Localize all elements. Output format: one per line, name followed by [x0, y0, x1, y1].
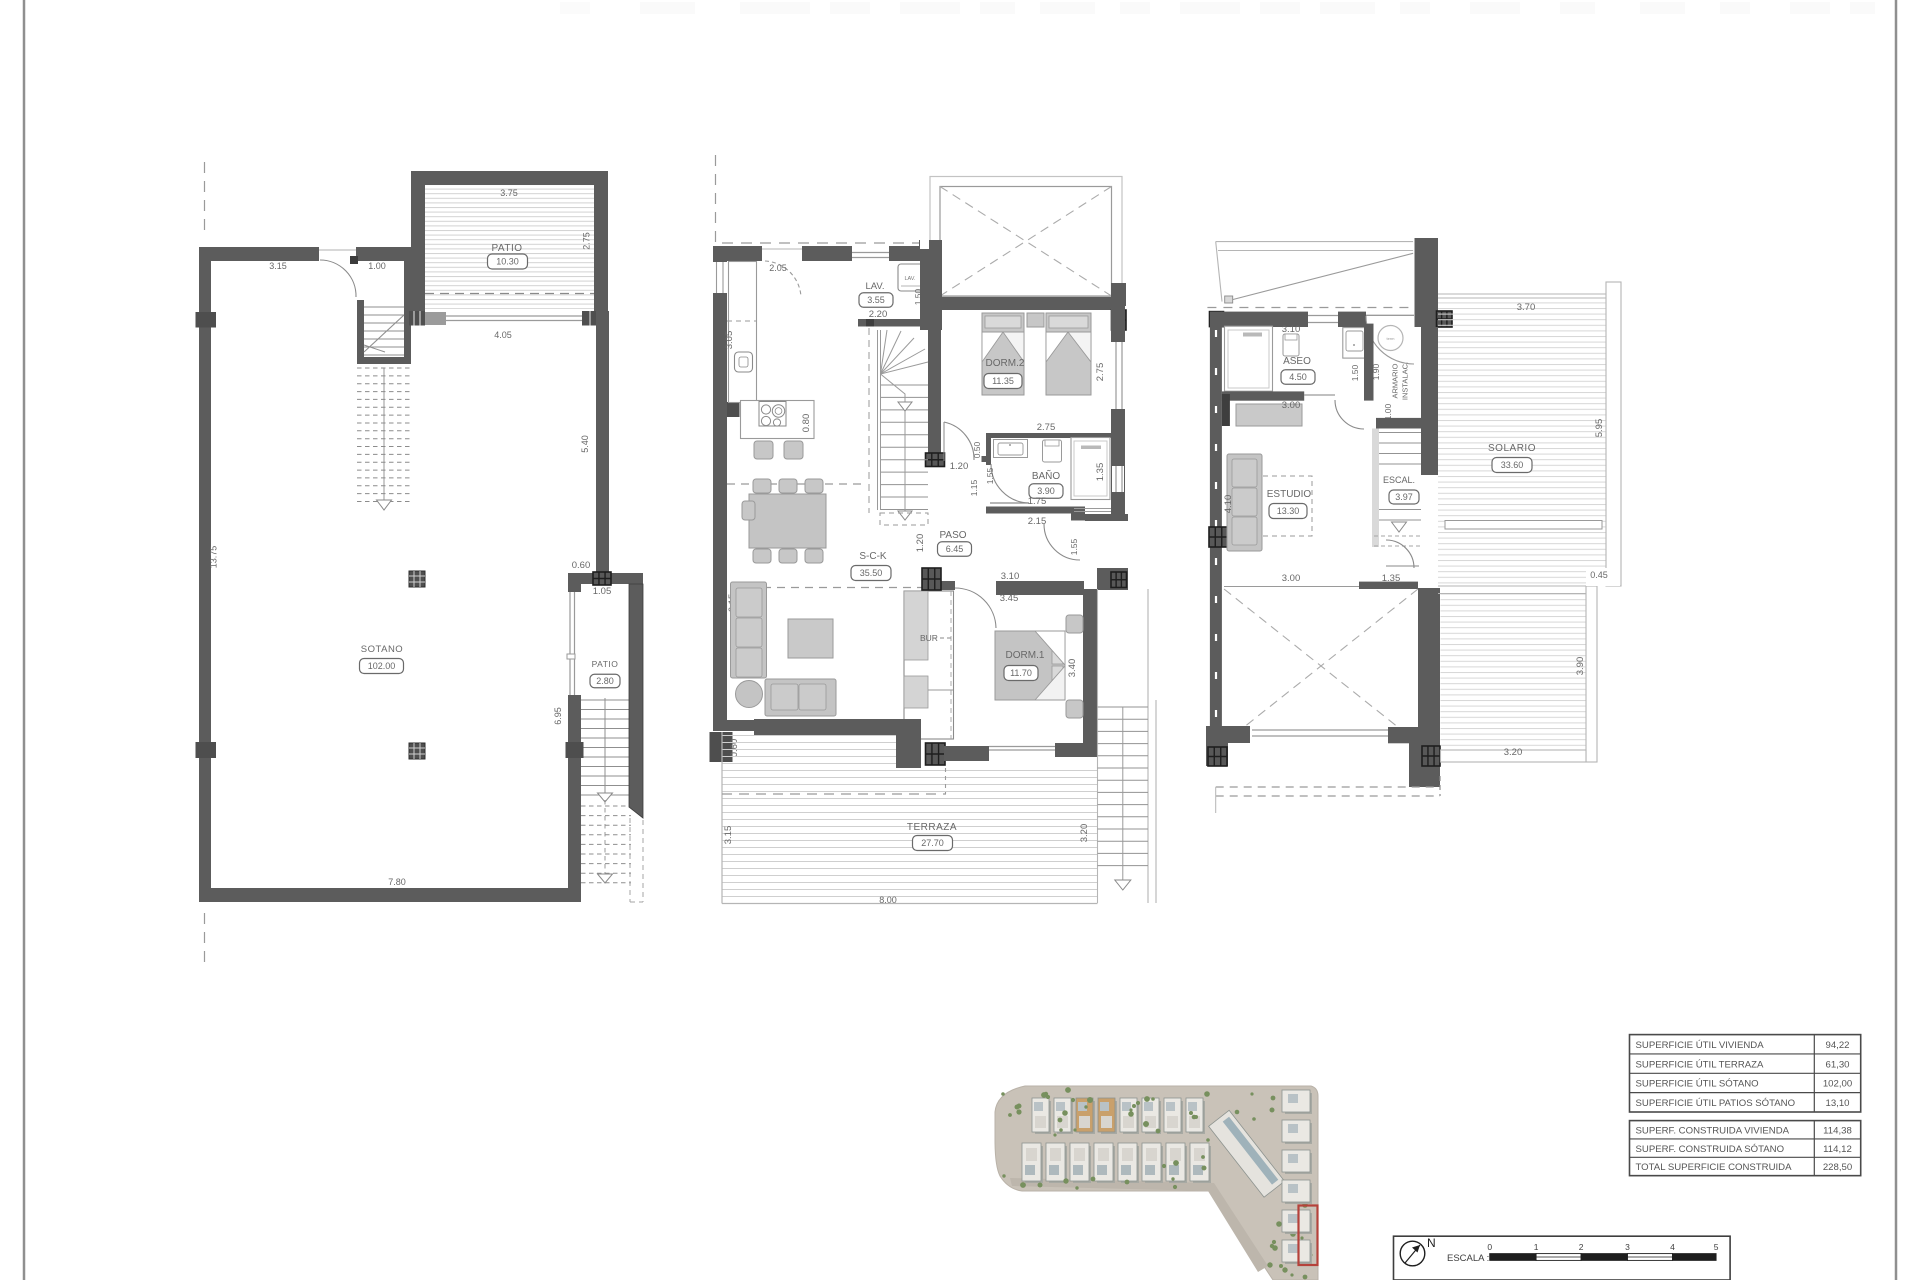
svg-text:1: 1 — [1534, 1242, 1539, 1252]
svg-text:61,30: 61,30 — [1825, 1059, 1849, 1070]
svg-text:SUPERF. CONSTRUIDA SÓTANO: SUPERF. CONSTRUIDA SÓTANO — [1636, 1144, 1785, 1155]
svg-text:3.10: 3.10 — [1001, 571, 1020, 582]
svg-text:3.15: 3.15 — [723, 826, 734, 845]
svg-text:3.20: 3.20 — [1079, 824, 1090, 843]
svg-text:3.55: 3.55 — [867, 295, 885, 305]
svg-text:3.40: 3.40 — [1067, 659, 1078, 678]
svg-text:TERRAZA: TERRAZA — [907, 822, 957, 833]
svg-text:ESTUDIO: ESTUDIO — [1267, 489, 1312, 500]
svg-text:3.00: 3.00 — [1282, 400, 1301, 411]
svg-text:13.75: 13.75 — [209, 546, 219, 569]
svg-text:SUPERFICIE ÚTIL PATIOS SÓTANO: SUPERFICIE ÚTIL PATIOS SÓTANO — [1636, 1098, 1796, 1109]
svg-text:PASO: PASO — [939, 530, 966, 541]
svg-text:35.50: 35.50 — [860, 568, 883, 578]
svg-text:10.30: 10.30 — [496, 257, 519, 267]
svg-text:0.60: 0.60 — [572, 560, 591, 571]
svg-text:LAV.: LAV. — [865, 281, 884, 292]
svg-text:0.45: 0.45 — [1590, 570, 1608, 580]
svg-text:DORM.1: DORM.1 — [1006, 650, 1045, 661]
svg-text:2.80: 2.80 — [596, 676, 614, 686]
svg-text:1.05: 1.05 — [593, 586, 612, 597]
svg-text:1.55: 1.55 — [1069, 538, 1079, 555]
svg-text:1.75: 1.75 — [1028, 496, 1047, 507]
svg-text:1.50: 1.50 — [1350, 364, 1360, 381]
svg-text:2.75: 2.75 — [582, 232, 592, 250]
svg-text:S-C-K: S-C-K — [859, 551, 887, 562]
svg-text:1.55: 1.55 — [985, 467, 995, 484]
svg-text:6.45: 6.45 — [946, 544, 964, 554]
svg-text:BAÑO: BAÑO — [1032, 469, 1061, 482]
svg-text:4.05: 4.05 — [494, 330, 512, 340]
svg-text:2.75: 2.75 — [1037, 422, 1056, 433]
svg-text:94,22: 94,22 — [1825, 1040, 1849, 1051]
svg-text:27.70: 27.70 — [921, 838, 944, 848]
svg-text:3.90: 3.90 — [1037, 486, 1055, 496]
svg-text:3: 3 — [1625, 1242, 1630, 1252]
svg-text:2.20: 2.20 — [869, 309, 888, 320]
svg-text:3.00: 3.00 — [1282, 573, 1301, 584]
svg-text:6.95: 6.95 — [553, 707, 563, 725]
svg-text:TOTAL SUPERFICIE CONSTRUIDA: TOTAL SUPERFICIE CONSTRUIDA — [1636, 1162, 1793, 1173]
svg-text:SUPERFICIE ÚTIL TERRAZA: SUPERFICIE ÚTIL TERRAZA — [1636, 1059, 1765, 1070]
svg-text:SUPERFICIE ÚTIL SÓTANO: SUPERFICIE ÚTIL SÓTANO — [1636, 1079, 1759, 1090]
svg-text:3.45: 3.45 — [1000, 593, 1019, 604]
svg-text:11.70: 11.70 — [1010, 668, 1032, 678]
svg-text:SOLARIO: SOLARIO — [1488, 443, 1536, 454]
svg-text:3.75: 3.75 — [500, 188, 518, 198]
svg-text:ESCALA :: ESCALA : — [1447, 1253, 1489, 1264]
svg-text:3.90: 3.90 — [1575, 657, 1586, 676]
svg-text:13,10: 13,10 — [1825, 1098, 1849, 1109]
svg-text:1.00: 1.00 — [368, 261, 386, 271]
svg-text:4.10: 4.10 — [1223, 495, 1234, 514]
svg-text:2.75: 2.75 — [1095, 363, 1106, 382]
svg-text:3.70: 3.70 — [1517, 302, 1536, 313]
svg-text:33.60: 33.60 — [1501, 460, 1524, 470]
svg-text:SUPERFICIE ÚTIL VIVIENDA: SUPERFICIE ÚTIL VIVIENDA — [1636, 1040, 1765, 1051]
svg-text:5.95: 5.95 — [1594, 419, 1605, 438]
svg-text:4.50: 4.50 — [1289, 372, 1307, 382]
svg-text:0.50: 0.50 — [972, 441, 982, 458]
svg-text:102,00: 102,00 — [1823, 1079, 1852, 1090]
svg-text:114,12: 114,12 — [1823, 1144, 1852, 1155]
svg-text:ASEO: ASEO — [1283, 356, 1311, 367]
svg-text:3.97: 3.97 — [1395, 492, 1413, 502]
svg-text:INSTALAC.: INSTALAC. — [1401, 362, 1410, 400]
svg-text:LAV.: LAV. — [904, 276, 915, 282]
svg-text:5.40: 5.40 — [580, 435, 590, 453]
svg-text:PATIO: PATIO — [491, 243, 522, 254]
svg-text:3.20: 3.20 — [1504, 747, 1523, 758]
svg-text:1.90: 1.90 — [1371, 363, 1381, 380]
svg-text:SUPERF. CONSTRUIDA VIVIENDA: SUPERF. CONSTRUIDA VIVIENDA — [1636, 1125, 1790, 1136]
svg-text:PATIO: PATIO — [592, 659, 619, 669]
svg-text:3.05: 3.05 — [724, 331, 735, 350]
svg-text:5: 5 — [1714, 1242, 1719, 1252]
svg-text:0.80: 0.80 — [801, 414, 812, 433]
svg-text:N: N — [1427, 1236, 1436, 1250]
svg-text:8.00: 8.00 — [879, 895, 897, 905]
svg-text:7.80: 7.80 — [388, 877, 406, 887]
svg-text:13.30: 13.30 — [1277, 506, 1300, 516]
svg-text:4: 4 — [1670, 1242, 1675, 1252]
svg-text:1.35: 1.35 — [1095, 463, 1106, 482]
svg-text:114,38: 114,38 — [1823, 1125, 1852, 1136]
svg-text:1.15: 1.15 — [969, 479, 979, 496]
svg-text:1.20: 1.20 — [915, 534, 926, 553]
svg-text:102.00: 102.00 — [368, 661, 396, 671]
svg-text:3.15: 3.15 — [269, 261, 287, 271]
svg-text:ESCAL.: ESCAL. — [1383, 475, 1415, 485]
svg-text:11.35: 11.35 — [992, 376, 1014, 386]
svg-text:2: 2 — [1579, 1242, 1584, 1252]
svg-text:DORM.2: DORM.2 — [986, 358, 1025, 369]
svg-text:1.00: 1.00 — [1383, 403, 1393, 420]
svg-text:0: 0 — [1487, 1242, 1492, 1252]
svg-text:2.05: 2.05 — [769, 263, 787, 273]
svg-text:1.35: 1.35 — [1382, 573, 1401, 584]
svg-text:1.20: 1.20 — [950, 461, 969, 472]
svg-text:3.10: 3.10 — [1282, 324, 1301, 335]
svg-text:ARMARIO: ARMARIO — [1391, 363, 1400, 398]
svg-text:SOTANO: SOTANO — [361, 644, 403, 655]
svg-text:term: term — [1387, 336, 1396, 341]
svg-text:228,50: 228,50 — [1823, 1162, 1852, 1173]
